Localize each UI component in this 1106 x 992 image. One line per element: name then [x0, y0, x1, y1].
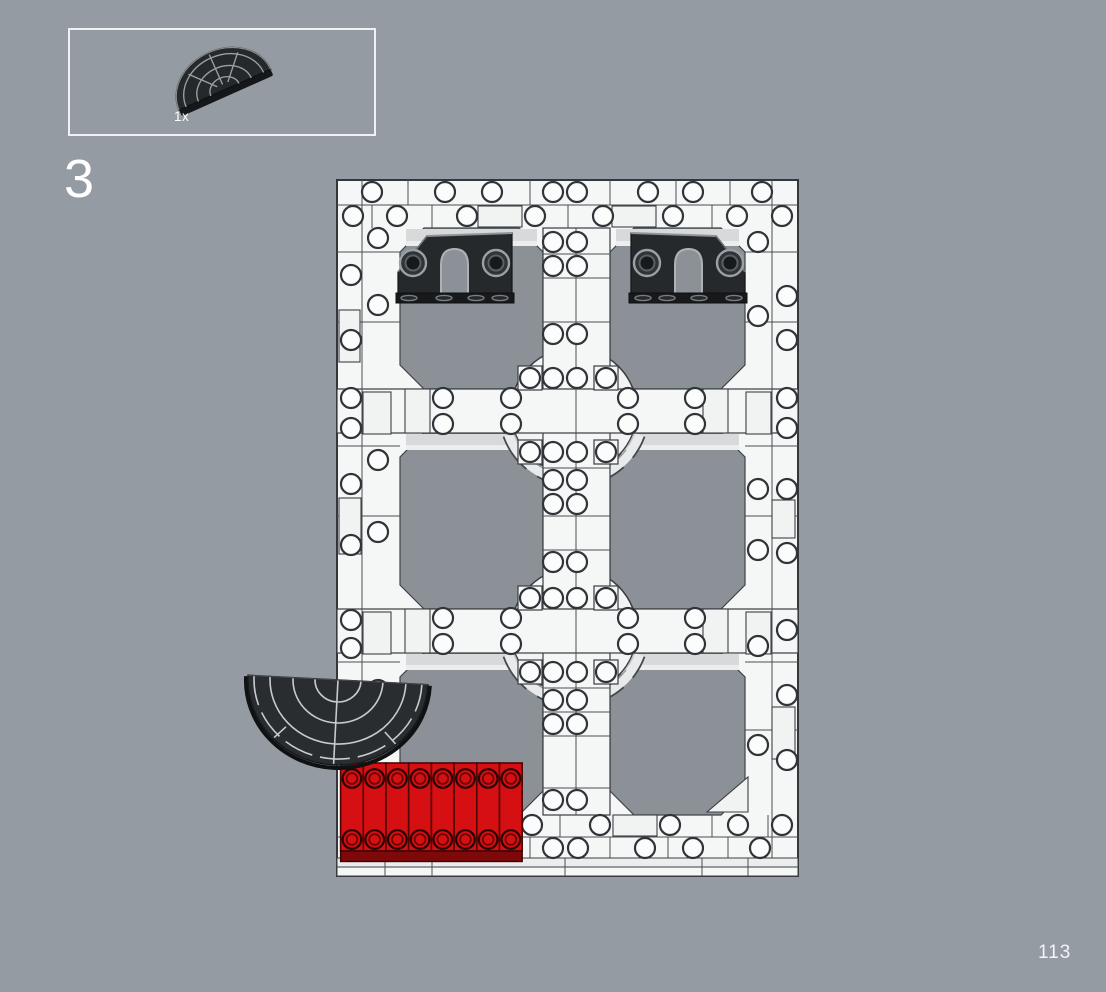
stud: [567, 232, 587, 252]
stud: [433, 414, 453, 434]
stud: [777, 388, 797, 408]
stud: [638, 182, 658, 202]
red-stud: [433, 769, 452, 788]
stud: [543, 588, 563, 608]
parts-callout-box: 1x: [68, 28, 376, 136]
stud: [748, 479, 768, 499]
stud: [543, 662, 563, 682]
stud: [748, 232, 768, 252]
stud: [435, 182, 455, 202]
stud: [567, 368, 587, 388]
stud: [752, 182, 772, 202]
stud: [567, 256, 587, 276]
stud: [567, 182, 587, 202]
stud: [543, 368, 563, 388]
stud: [457, 206, 477, 226]
stud: [663, 206, 683, 226]
stud: [567, 470, 587, 490]
stud: [772, 815, 792, 835]
page-number: 113: [1038, 942, 1071, 964]
stud: [683, 838, 703, 858]
red-stud: [479, 769, 498, 788]
stud: [543, 838, 563, 858]
stud: [543, 256, 563, 276]
stud: [618, 388, 638, 408]
stud: [777, 330, 797, 350]
stud: [728, 815, 748, 835]
red-stud: [365, 830, 384, 849]
red-stud: [502, 830, 521, 849]
red-stud: [433, 830, 452, 849]
stud: [341, 330, 361, 350]
red-stud: [365, 769, 384, 788]
stud: [482, 182, 502, 202]
stud: [567, 662, 587, 682]
stud: [501, 414, 521, 434]
stud: [777, 418, 797, 438]
stud: [341, 638, 361, 658]
red-stud: [479, 830, 498, 849]
stud: [596, 368, 616, 388]
stud: [543, 714, 563, 734]
stud: [567, 588, 587, 608]
stud: [777, 286, 797, 306]
stud: [567, 494, 587, 514]
stud: [343, 206, 363, 226]
stud: [543, 690, 563, 710]
stud: [567, 324, 587, 344]
red-stud: [388, 769, 407, 788]
stud: [543, 442, 563, 462]
stud: [501, 388, 521, 408]
stud: [368, 295, 388, 315]
stud: [568, 838, 588, 858]
stud: [685, 388, 705, 408]
stud: [748, 306, 768, 326]
stud: [543, 552, 563, 572]
stud: [543, 790, 563, 810]
stud: [596, 662, 616, 682]
stud: [368, 522, 388, 542]
stud: [777, 685, 797, 705]
stud: [520, 368, 540, 388]
stud: [777, 479, 797, 499]
stud: [520, 588, 540, 608]
stud: [618, 414, 638, 434]
stud: [660, 815, 680, 835]
part-thumbnail: [70, 30, 374, 134]
red-stud: [411, 830, 430, 849]
stud: [520, 442, 540, 462]
stud: [593, 206, 613, 226]
stud: [685, 608, 705, 628]
stud: [362, 182, 382, 202]
stud: [685, 414, 705, 434]
assembly-illustration: [0, 0, 1106, 992]
stud: [567, 442, 587, 462]
stud: [596, 442, 616, 462]
red-stud: [456, 769, 475, 788]
red-brick-wall: [341, 763, 523, 862]
quantity-label: 1x: [174, 109, 189, 124]
stud: [543, 470, 563, 490]
stud: [618, 634, 638, 654]
stud: [520, 662, 540, 682]
stud: [635, 838, 655, 858]
stud: [750, 838, 770, 858]
red-stud: [343, 769, 362, 788]
stud: [525, 206, 545, 226]
stud: [777, 750, 797, 770]
stud: [341, 265, 361, 285]
stud: [433, 388, 453, 408]
stud: [368, 450, 388, 470]
stud: [567, 714, 587, 734]
stud: [777, 543, 797, 563]
stud: [341, 610, 361, 630]
stud: [748, 735, 768, 755]
stud: [590, 815, 610, 835]
stud: [543, 324, 563, 344]
stud: [543, 182, 563, 202]
stud: [772, 206, 792, 226]
stud: [501, 634, 521, 654]
stud: [777, 620, 797, 640]
stud: [368, 228, 388, 248]
stud: [618, 608, 638, 628]
red-stud: [456, 830, 475, 849]
stud: [567, 790, 587, 810]
stud: [522, 815, 542, 835]
stud: [341, 474, 361, 494]
instruction-page: 1x 3 113: [0, 0, 1106, 992]
stud: [341, 535, 361, 555]
stud: [341, 418, 361, 438]
stud: [543, 232, 563, 252]
stud: [543, 494, 563, 514]
step-number: 3: [64, 152, 94, 206]
stud: [685, 634, 705, 654]
red-stud: [502, 769, 521, 788]
red-stud: [388, 830, 407, 849]
stud: [748, 540, 768, 560]
stud: [567, 690, 587, 710]
stud: [501, 608, 521, 628]
stud: [596, 588, 616, 608]
red-stud: [343, 830, 362, 849]
stud: [433, 608, 453, 628]
stud: [748, 636, 768, 656]
red-wall-base: [341, 851, 523, 862]
stud: [433, 634, 453, 654]
stud: [387, 206, 407, 226]
stud: [727, 206, 747, 226]
stud: [341, 388, 361, 408]
stud: [683, 182, 703, 202]
red-stud: [411, 769, 430, 788]
stud: [567, 552, 587, 572]
